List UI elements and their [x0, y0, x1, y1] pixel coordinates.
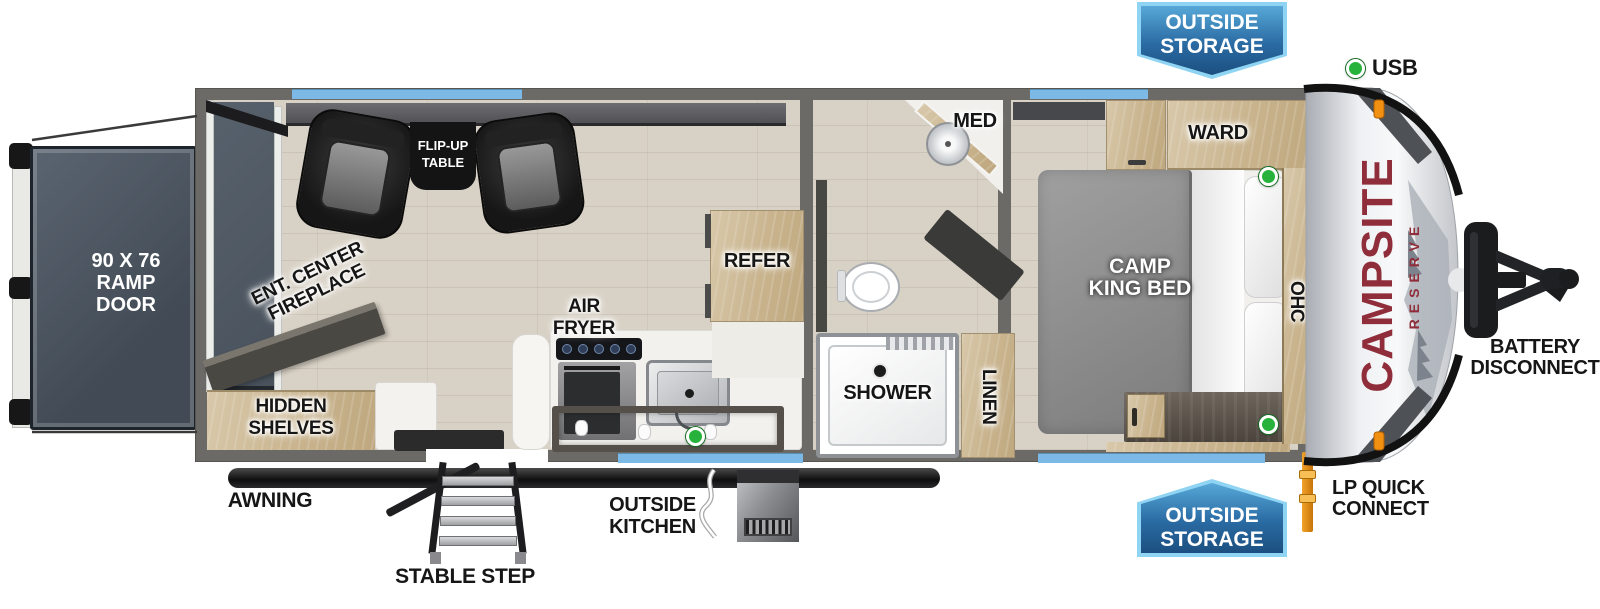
bathroom-pocket-door — [816, 180, 827, 332]
badge-line1: OUTSIDE — [1137, 11, 1287, 35]
ramp-cable-top — [32, 116, 197, 140]
awning-tube — [228, 468, 940, 488]
step-foot — [515, 552, 526, 564]
badge-line2: STORAGE — [1137, 35, 1287, 59]
lp-pipe-fitting — [1299, 494, 1316, 503]
sink-drain — [685, 389, 694, 398]
flip-up-table-line1: FLIP-UP — [410, 137, 476, 154]
clearance-light-top — [1374, 100, 1384, 118]
camp-king-bed-line1: CAMP — [1050, 256, 1230, 278]
nightstand-handle — [1132, 408, 1137, 426]
badge-text: OUTSIDE STORAGE — [1137, 504, 1287, 552]
counter-item — [575, 420, 588, 436]
shower-drain — [872, 363, 888, 379]
toilet-seat-ring — [852, 271, 890, 303]
usb-dot-bedroom-top — [1259, 167, 1278, 186]
lp-quick-connect-line2: CONNECT — [1332, 499, 1462, 520]
flip-up-table: FLIP-UP TABLE — [410, 122, 476, 190]
window-bedroom-top — [1030, 89, 1148, 99]
hidden-shelves-line2: SHELVES — [207, 418, 375, 440]
toilet — [842, 262, 900, 312]
camp-king-bed-line2: KING BED — [1050, 278, 1230, 300]
refer-label: REFER — [702, 250, 812, 272]
burner-icon — [578, 344, 588, 354]
shower-door-track — [886, 337, 954, 350]
burner-icon — [594, 344, 604, 354]
a-frame-center-tube — [1496, 272, 1526, 288]
window-living-top — [292, 89, 522, 99]
tongue-jack-highlight — [1470, 232, 1478, 328]
med-cabinet-label: MED — [940, 110, 1010, 132]
cap-graphic-slash-bottom — [1352, 386, 1432, 462]
a-frame-bar-bottom — [1496, 278, 1548, 312]
recliner-chair-right — [471, 109, 588, 236]
clearance-light-bottom — [1374, 432, 1384, 450]
step-foot — [430, 552, 441, 564]
counter-item — [638, 424, 651, 440]
hidden-shelves-line1: HIDDEN — [207, 396, 375, 418]
usb-legend-dot — [1346, 59, 1365, 78]
ramp-door-label-line2: RAMP — [46, 272, 206, 294]
bed-base-trim — [1106, 442, 1290, 452]
cap-trim-bottom — [1304, 355, 1459, 462]
flip-up-table-label: FLIP-UP TABLE — [410, 137, 476, 171]
refer-trim-bottom — [705, 284, 711, 318]
hidden-shelves-label: HIDDEN SHELVES — [207, 396, 375, 440]
outside-kitchen-vent — [744, 518, 792, 536]
recliner-seat — [496, 141, 563, 215]
counter-item — [704, 424, 717, 440]
outside-kitchen-unit — [737, 470, 799, 542]
stove-cooktop — [556, 338, 642, 360]
entry-door-mat — [394, 430, 504, 451]
lp-quick-connect-pipe — [1302, 452, 1313, 532]
step-tread — [441, 496, 515, 506]
wardrobe-label: WARD — [1158, 122, 1278, 144]
bedroom-window-valance — [1013, 102, 1105, 120]
outside-storage-badge-bottom: OUTSIDE STORAGE — [1137, 479, 1287, 557]
hitch-wing — [1545, 287, 1569, 302]
air-fryer-label: AIR FRYER — [534, 296, 634, 340]
jack-wheel — [1448, 268, 1472, 292]
recliner-chair-left — [292, 106, 419, 243]
hitch-coupler — [1540, 268, 1570, 290]
burner-icon — [562, 344, 572, 354]
usb-dot-bedroom-bottom — [1259, 415, 1278, 434]
mountain-graphic — [1404, 180, 1452, 420]
outside-storage-badge-top: OUTSIDE STORAGE — [1137, 2, 1287, 79]
cap-graphic-slash-top — [1352, 88, 1432, 164]
step-tread — [442, 476, 514, 486]
badge-line1: OUTSIDE — [1137, 504, 1287, 528]
linen-label: LINEN — [978, 352, 998, 442]
tree-graphic — [1417, 330, 1433, 381]
usb-legend-label: USB — [1372, 57, 1432, 79]
tongue-jack-box — [1464, 222, 1498, 338]
cabinet-handle — [1128, 160, 1146, 165]
stable-step-label: STABLE STEP — [375, 566, 555, 588]
tree-graphic — [1408, 230, 1422, 278]
lp-quick-connect-label: LP QUICK CONNECT — [1332, 478, 1462, 520]
hitch-ball-knob — [1559, 269, 1579, 289]
air-fryer-line1: AIR — [534, 296, 634, 318]
recliner-seat — [318, 139, 392, 218]
bedroom-cabinet-small — [1106, 100, 1166, 170]
stable-step — [430, 462, 526, 564]
shower-label: SHOWER — [816, 382, 959, 404]
awning-label: AWNING — [210, 490, 330, 512]
brand-series-text: RESERVE — [1406, 221, 1422, 330]
outside-kitchen-line1: OUTSIDE — [600, 494, 705, 516]
rear-doorway-rail-left — [206, 100, 214, 392]
air-fryer-line2: FRYER — [534, 318, 634, 340]
ramp-door-label-line1: 90 X 76 — [46, 250, 206, 272]
refer-trim-top — [705, 214, 711, 248]
cap-trim-top — [1304, 88, 1459, 195]
lp-quick-connect-line1: LP QUICK — [1332, 478, 1462, 499]
toilet-tank — [837, 270, 846, 302]
entry-door-opening — [426, 449, 548, 462]
front-cap — [1306, 86, 1458, 464]
burner-icon — [626, 344, 636, 354]
oven-handle — [564, 366, 620, 370]
kitchen-pillar — [512, 334, 550, 450]
floorplan-canvas: 90 X 76 RAMP DOOR FLIP-UP TABLE ENT. CEN… — [0, 0, 1600, 609]
burner-icon — [610, 344, 620, 354]
flip-up-table-line2: TABLE — [410, 154, 476, 171]
step-tread — [440, 516, 516, 526]
step-tread — [439, 536, 517, 546]
badge-text: OUTSIDE STORAGE — [1137, 11, 1287, 59]
outside-kitchen-line2: KITCHEN — [600, 516, 705, 538]
battery-disconnect-label: BATTERY DISCONNECT — [1455, 337, 1600, 379]
ramp-door-label: 90 X 76 RAMP DOOR — [46, 250, 206, 316]
badge-line2: STORAGE — [1137, 528, 1287, 552]
ramp-door-label-line3: DOOR — [46, 294, 206, 316]
window-bedroom-bottom — [1038, 453, 1265, 463]
bedroom-nightstand — [1127, 394, 1165, 438]
outside-kitchen-top-trim — [737, 470, 799, 483]
lp-pipe-fitting — [1299, 470, 1316, 479]
camp-king-bed-label: CAMP KING BED — [1050, 256, 1230, 300]
battery-disconnect-line1: BATTERY — [1455, 337, 1600, 358]
ohc-label: OHC — [1283, 266, 1309, 338]
refer-base-counter — [712, 322, 804, 378]
brand-name-text: CAMPSITE — [1353, 157, 1402, 392]
window-kitchen-bottom — [618, 453, 803, 463]
outside-kitchen-label: OUTSIDE KITCHEN — [600, 494, 705, 538]
sink-drain — [945, 141, 951, 147]
battery-disconnect-line2: DISCONNECT — [1455, 358, 1600, 379]
usb-dot-kitchen — [686, 427, 705, 446]
a-frame-bar-top — [1496, 250, 1548, 284]
